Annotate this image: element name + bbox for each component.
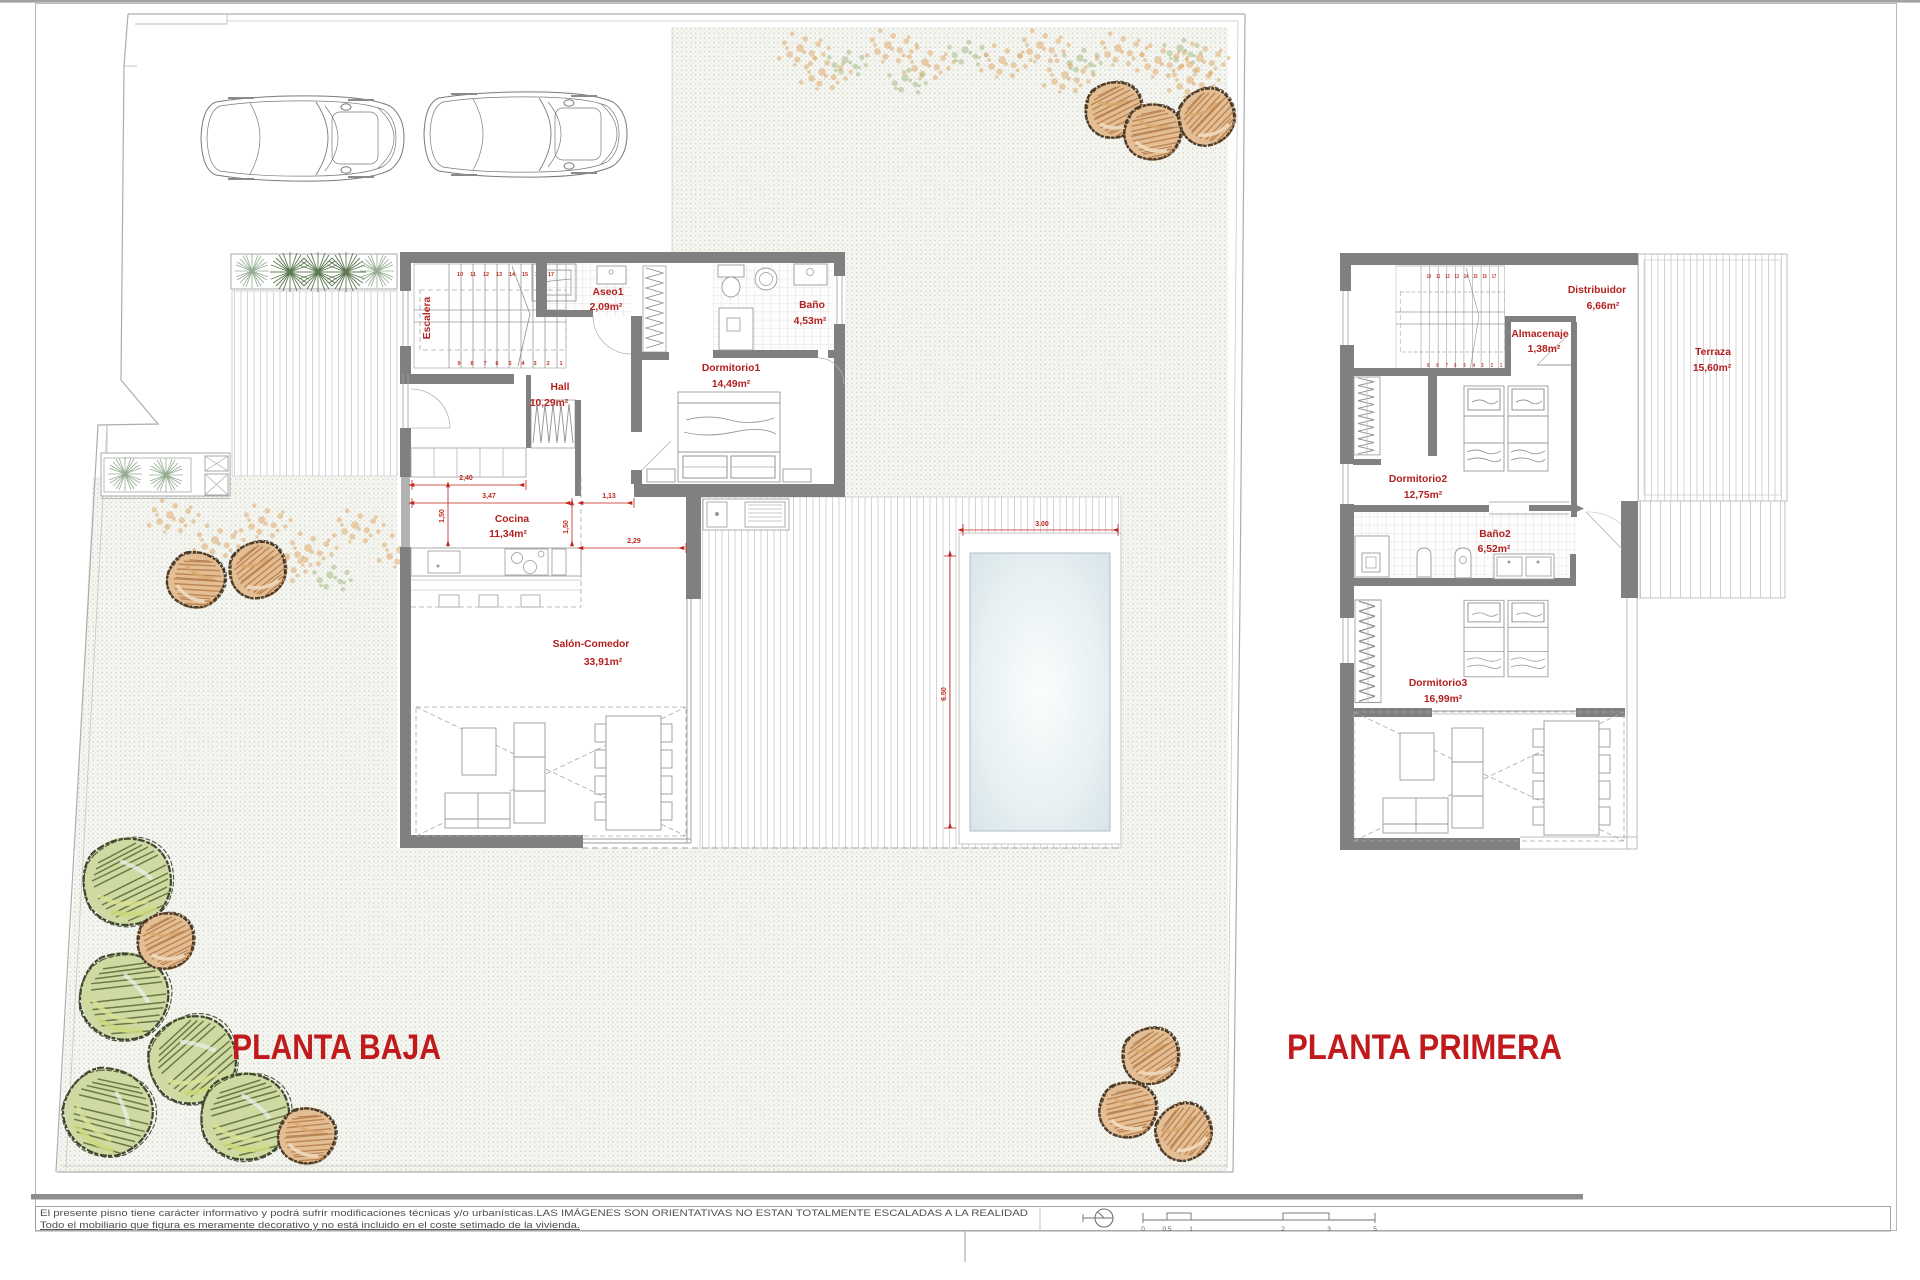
- svg-text:2,40: 2,40: [459, 475, 473, 482]
- svg-text:2: 2: [1281, 1226, 1285, 1233]
- svg-text:0.5: 0.5: [1162, 1226, 1171, 1233]
- svg-text:Aseo1: Aseo1: [593, 287, 624, 298]
- svg-text:16,99m²: 16,99m²: [1424, 694, 1463, 705]
- svg-text:10,29m²: 10,29m²: [530, 398, 569, 409]
- svg-text:Todo el mobiliario que figura: Todo el mobiliario que figura es meramen…: [40, 1220, 580, 1231]
- svg-text:12,75m²: 12,75m²: [1404, 490, 1443, 501]
- svg-text:PLANTA PRIMERA: PLANTA PRIMERA: [1287, 1027, 1562, 1067]
- svg-text:33,91m²: 33,91m²: [584, 657, 623, 668]
- svg-text:Dormitorio3: Dormitorio3: [1409, 678, 1468, 689]
- svg-text:1,38m²: 1,38m²: [1528, 344, 1561, 355]
- svg-text:14,49m²: 14,49m²: [712, 379, 751, 390]
- svg-text:Dormitorio1: Dormitorio1: [702, 363, 761, 374]
- svg-text:Hall: Hall: [551, 382, 570, 393]
- svg-text:PLANTA BAJA: PLANTA BAJA: [232, 1027, 441, 1067]
- svg-text:Cocina: Cocina: [495, 514, 530, 525]
- svg-text:6.50: 6.50: [941, 687, 948, 701]
- svg-text:1,50: 1,50: [563, 520, 570, 534]
- svg-text:15,60m²: 15,60m²: [1693, 363, 1732, 374]
- svg-text:3: 3: [1327, 1226, 1331, 1233]
- svg-text:Terraza: Terraza: [1695, 347, 1731, 358]
- svg-text:1,50: 1,50: [439, 509, 446, 523]
- svg-text:Dormitorio2: Dormitorio2: [1389, 474, 1448, 485]
- svg-text:1: 1: [1189, 1226, 1193, 1233]
- svg-text:Salón-Comedor: Salón-Comedor: [553, 639, 630, 650]
- svg-text:3.00: 3.00: [1035, 521, 1049, 528]
- svg-text:11,34m²: 11,34m²: [489, 529, 527, 540]
- svg-text:3,47: 3,47: [482, 493, 496, 500]
- svg-text:6,52m²: 6,52m²: [1478, 544, 1511, 555]
- svg-text:6,66m²: 6,66m²: [1587, 301, 1620, 312]
- svg-text:Almacenaje: Almacenaje: [1511, 329, 1569, 340]
- svg-text:2,29: 2,29: [627, 538, 641, 545]
- svg-text:Escalera: Escalera: [422, 297, 433, 340]
- svg-text:El presente pisno tiene carác: El presente pisno tiene carácter informa…: [40, 1208, 1028, 1219]
- svg-text:0: 0: [1141, 1226, 1145, 1233]
- svg-text:2,09m²: 2,09m²: [590, 302, 623, 313]
- svg-text:Baño2: Baño2: [1479, 529, 1511, 540]
- svg-text:Baño: Baño: [799, 300, 825, 311]
- svg-text:4,53m²: 4,53m²: [794, 316, 827, 327]
- svg-text:Distribuidor: Distribuidor: [1568, 285, 1626, 296]
- svg-text:1,13: 1,13: [602, 493, 616, 500]
- svg-text:5: 5: [1373, 1226, 1377, 1233]
